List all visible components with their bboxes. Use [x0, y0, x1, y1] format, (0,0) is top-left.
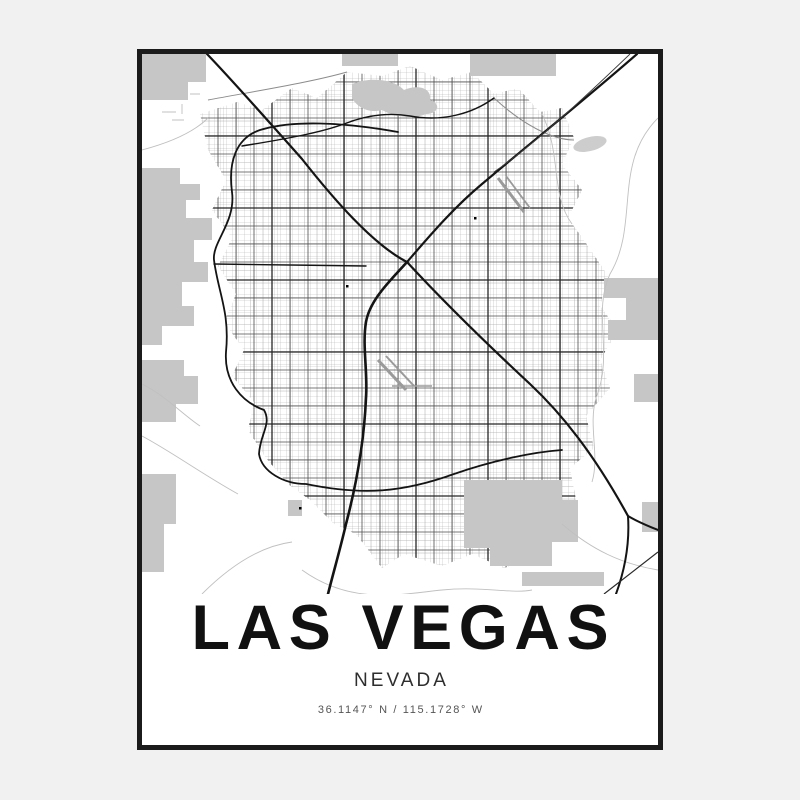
- caption-block: LAS VEGAS NEVADA 36.1147° N / 115.1728° …: [142, 596, 658, 717]
- land-patch: [634, 374, 658, 402]
- poster-coordinates: 36.1147° N / 115.1728° W: [142, 704, 658, 717]
- land-patch: [522, 572, 604, 586]
- page: { "poster": { "title": "LAS VEGAS", "sub…: [0, 0, 800, 800]
- poster-subtitle: NEVADA: [142, 671, 658, 692]
- map-area: [142, 54, 658, 594]
- landmark-dot: [299, 507, 302, 510]
- land-patch: [470, 54, 556, 76]
- land-patch: [342, 54, 398, 66]
- poster-title: LAS VEGAS: [142, 596, 658, 660]
- poster: LAS VEGAS NEVADA 36.1147° N / 115.1728° …: [142, 54, 658, 745]
- landmark-dot: [346, 285, 349, 288]
- poster-frame: LAS VEGAS NEVADA 36.1147° N / 115.1728° …: [137, 49, 663, 750]
- landmark-dot: [474, 217, 477, 220]
- las-vegas-street-map: [142, 54, 658, 594]
